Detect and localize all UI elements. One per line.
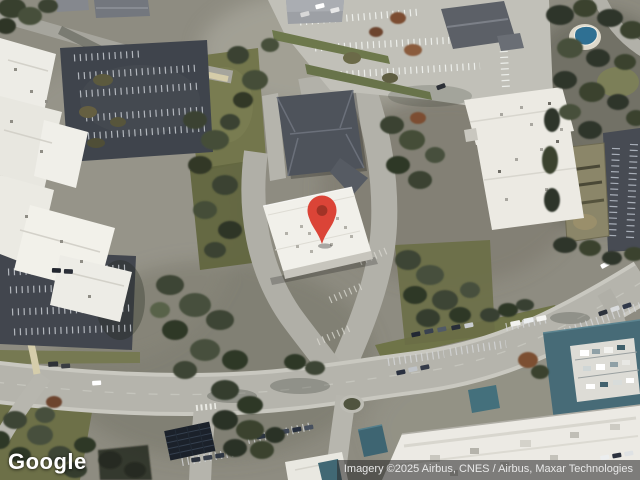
google-logo[interactable]: Google [8, 449, 87, 475]
attribution-bar: Imagery ©2025 Airbus, CNES / Airbus, Max… [337, 460, 640, 480]
attribution-text: Imagery ©2025 Airbus, CNES / Airbus, Max… [344, 463, 633, 475]
satellite-imagery [0, 0, 640, 480]
pin-inner-dot [317, 205, 328, 216]
map-canvas[interactable]: Google Imagery ©2025 Airbus, CNES / Airb… [0, 0, 640, 480]
